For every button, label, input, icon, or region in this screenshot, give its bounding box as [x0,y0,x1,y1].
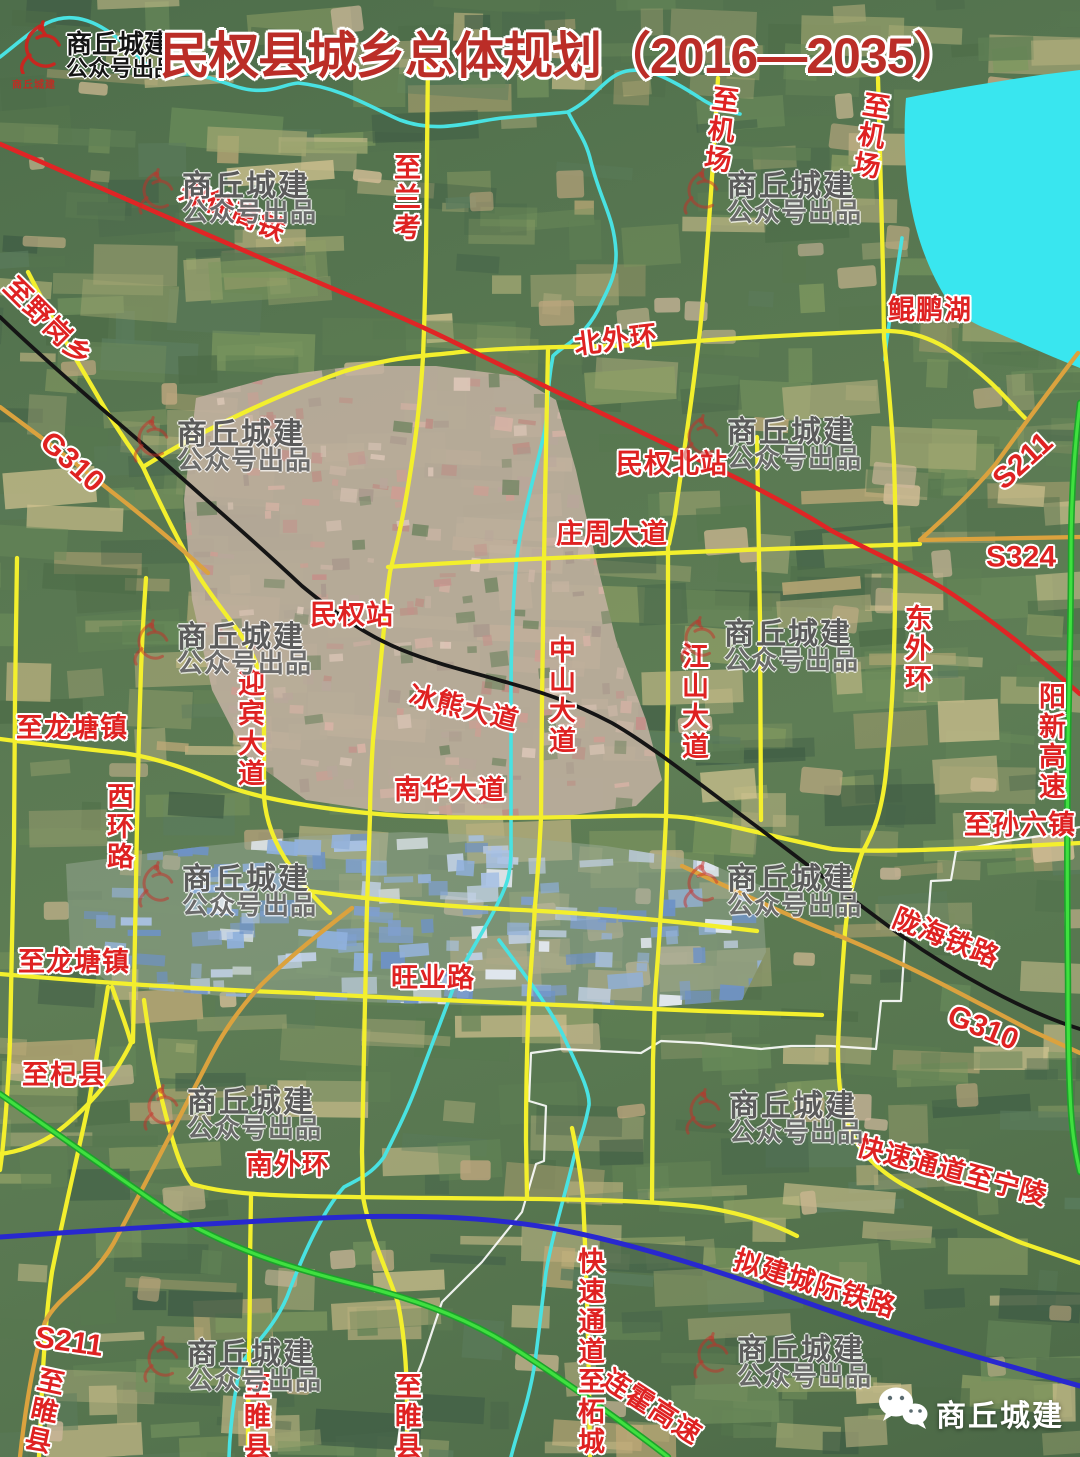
road-label-s324: S324 [986,541,1056,572]
shangqiu-chengjian-logo: 商丘城建 公众号出品 商丘城建 [10,18,160,80]
road-label-kuaisu-zhecheng: 快速通道至柘城 [575,1247,603,1457]
lake-label-kunpeng-hu: 鲲鹏湖 [888,296,972,324]
road-label-yangxin-gaosu: 阳新高速 [1036,682,1064,802]
road-label-nanhua-dadao: 南华大道 [394,776,506,804]
wechat-icon [874,1383,932,1433]
road-label-zhi-suixian-2: 至睢县 [241,1372,269,1457]
satellite-basemap [0,0,1080,1457]
wechat-account-name: 商丘城建 [936,1391,1064,1435]
road-label-dong-waihuan: 东外环 [902,604,930,694]
road-label-zhongshan-dadao: 中山大道 [546,636,574,756]
station-label-minquan-zhan: 民权站 [310,601,394,629]
road-label-wangye-lu: 旺业路 [391,964,475,992]
road-label-zhi-suixian-3: 至睢县 [392,1372,420,1457]
road-label-jiangshan-dadao: 江山大道 [679,642,707,762]
phoenix-logo-icon [10,18,64,74]
road-label-zhi-longtangzhen-n: 至龙塘镇 [16,714,128,742]
road-label-nan-waihuan: 南外环 [246,1151,330,1179]
road-label-zhi-longtangzhen-s: 至龙塘镇 [18,948,130,976]
road-label-zhi-qixian: 至杞县 [22,1061,106,1089]
page-title: 民权县城乡总体规划（2016—2035） [160,16,962,88]
road-label-zhuangzhou-dadao: 庄周大道 [556,520,668,548]
road-label-zhi-sunliuzhen: 至孙六镇 [964,811,1076,839]
logo-seal-text: 商丘城建 [12,76,56,91]
wechat-footer: 商丘城建 [874,1383,1074,1435]
road-label-yingbin-dadao: 迎宾大道 [235,669,263,789]
header: 商丘城建 公众号出品 商丘城建 民权县城乡总体规划（2016—2035） [0,0,1080,92]
station-label-minquan-beizhan: 民权北站 [616,450,728,478]
road-label-xihuan-lu: 西环路 [104,782,132,872]
planning-map-image: 郑徐高铁 至野岗乡 G310 至兰考 至机场 至机场 鲲鹏湖 北外环 民权北站 … [0,0,1080,1457]
road-label-zhi-lankao: 至兰考 [391,153,419,243]
